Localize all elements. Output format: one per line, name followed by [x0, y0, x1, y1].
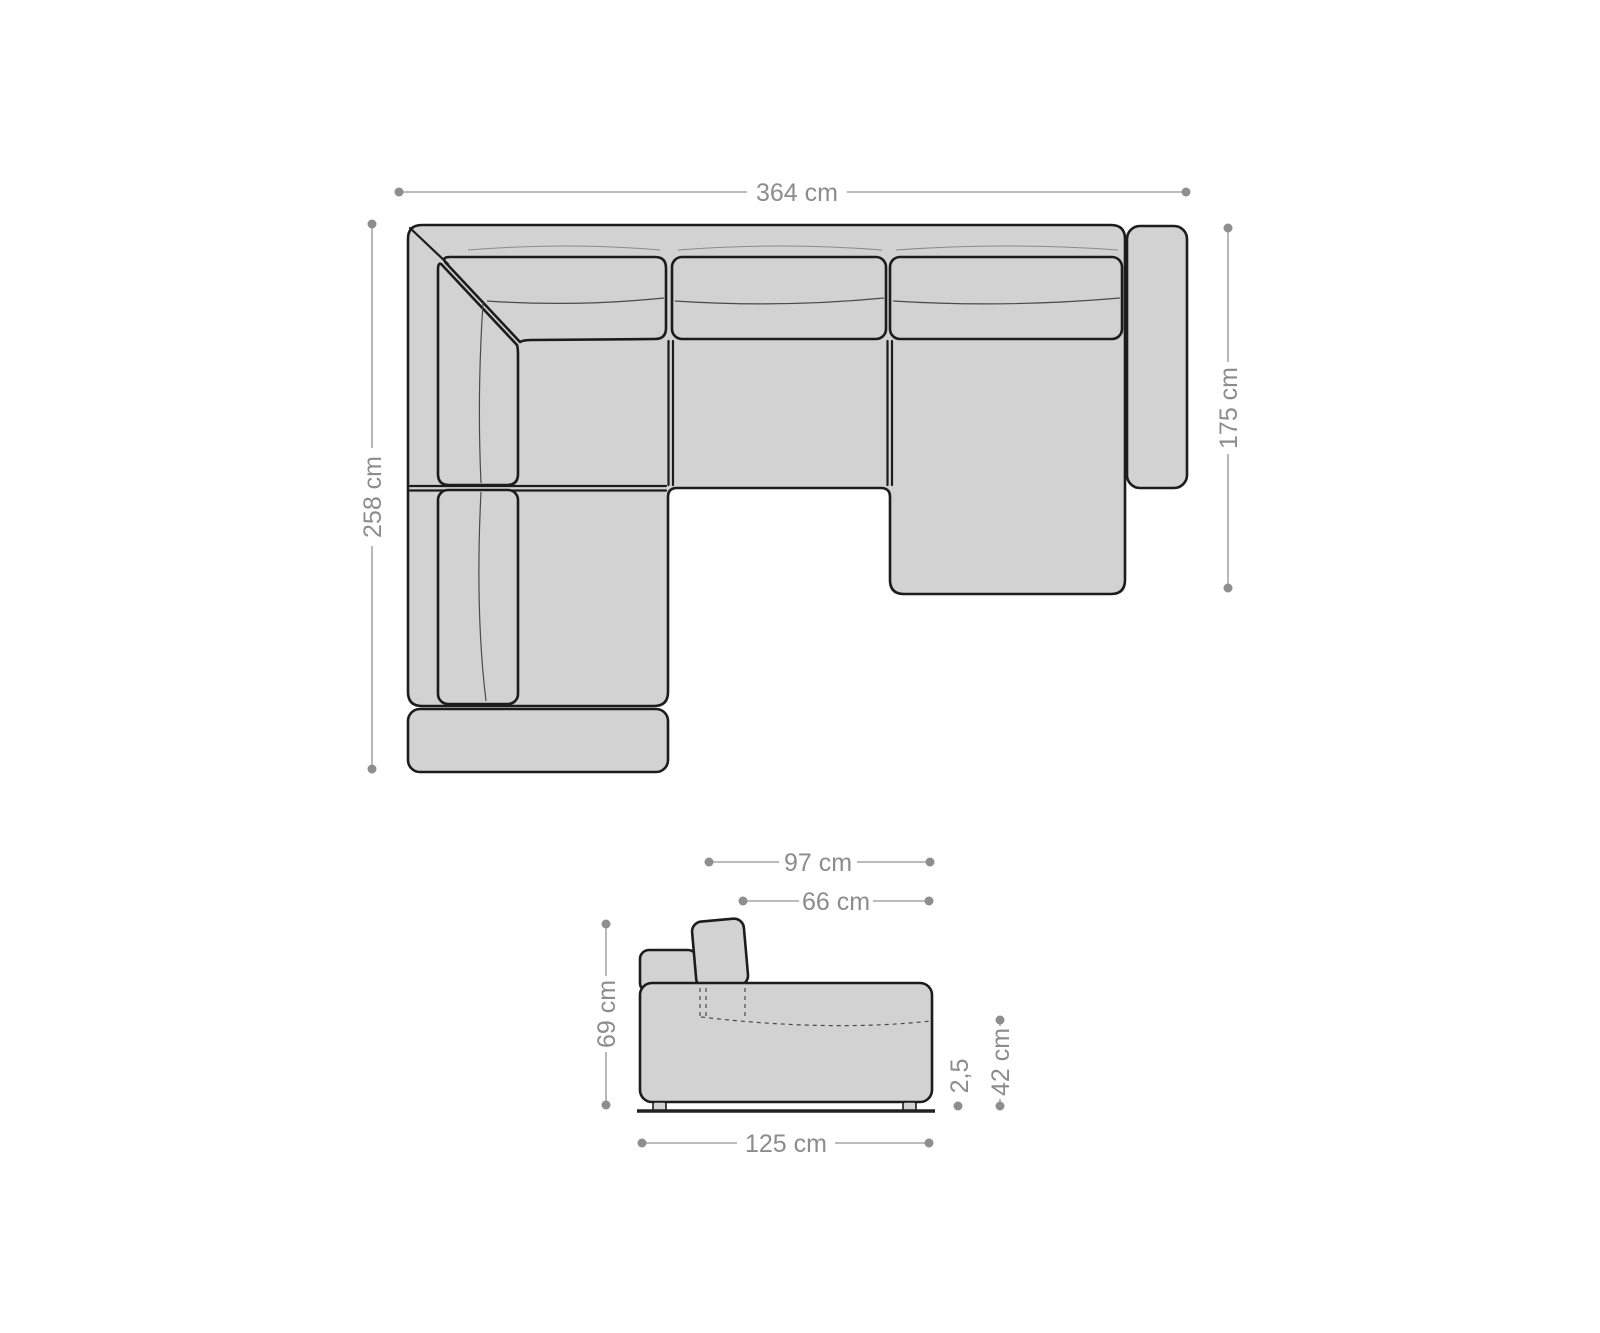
dim-seat-depth-label: 66 cm: [802, 888, 870, 916]
dim-endpoint-dot: [705, 858, 714, 867]
dim-endpoint-dot: [925, 1139, 934, 1148]
top-view-right-armrest: [1127, 226, 1187, 488]
dim-endpoint-dot: [602, 1101, 611, 1110]
dim-endpoint-dot: [368, 220, 377, 229]
dim-base-depth: 125 cm: [638, 1130, 934, 1158]
side-view-backrest-cushion: [691, 918, 749, 989]
dim-total-depth: 97 cm: [705, 849, 935, 877]
dim-foot-height: 2,5: [946, 1059, 974, 1111]
dim-overall-width-label: 364 cm: [756, 179, 838, 207]
sofa-side-view: 97 cm 66 cm 69 cm 125 cm 2,5: [593, 849, 1015, 1158]
dim-foot-height-label: 2,5: [946, 1059, 974, 1094]
top-view-middle-back-cushion: [672, 257, 886, 339]
dim-seat-height: 42 cm: [987, 1016, 1015, 1111]
dim-endpoint-dot: [954, 1102, 963, 1111]
sofa-dimension-diagram-page: 364 cm 258 cm 175 cm: [0, 0, 1600, 1333]
dim-endpoint-dot: [1224, 584, 1233, 593]
dim-endpoint-dot: [1182, 188, 1191, 197]
dim-endpoint-dot: [996, 1102, 1005, 1111]
sofa-top-view: 364 cm 258 cm 175 cm: [359, 179, 1243, 774]
dim-endpoint-dot: [1224, 224, 1233, 233]
dim-right-depth: 175 cm: [1215, 224, 1243, 593]
top-view-right-back-cushion: [890, 257, 1122, 339]
dim-seat-height-label: 42 cm: [987, 1028, 1015, 1096]
top-view-bottom-armrest: [408, 709, 668, 772]
dim-endpoint-dot: [368, 765, 377, 774]
dim-endpoint-dot: [395, 188, 404, 197]
dim-total-depth-label: 97 cm: [784, 849, 852, 877]
dim-seat-depth: 66 cm: [739, 888, 934, 916]
dim-endpoint-dot: [739, 897, 748, 906]
dim-endpoint-dot: [926, 858, 935, 867]
dim-overall-width: 364 cm: [395, 179, 1191, 207]
dim-endpoint-dot: [638, 1139, 647, 1148]
dim-back-height-label: 69 cm: [593, 980, 621, 1048]
dim-base-depth-label: 125 cm: [745, 1130, 827, 1158]
dim-right-depth-label: 175 cm: [1215, 367, 1243, 449]
dim-left-depth-label: 258 cm: [359, 456, 387, 538]
dim-endpoint-dot: [602, 920, 611, 929]
dim-endpoint-dot: [925, 897, 934, 906]
dim-left-depth: 258 cm: [359, 220, 387, 774]
sofa-dimension-diagram: 364 cm 258 cm 175 cm: [0, 0, 1600, 1333]
dim-back-height: 69 cm: [593, 920, 621, 1110]
dim-endpoint-dot: [996, 1016, 1005, 1025]
top-view-left-back-cushion-lower: [438, 490, 518, 704]
side-view-body: [640, 983, 932, 1102]
